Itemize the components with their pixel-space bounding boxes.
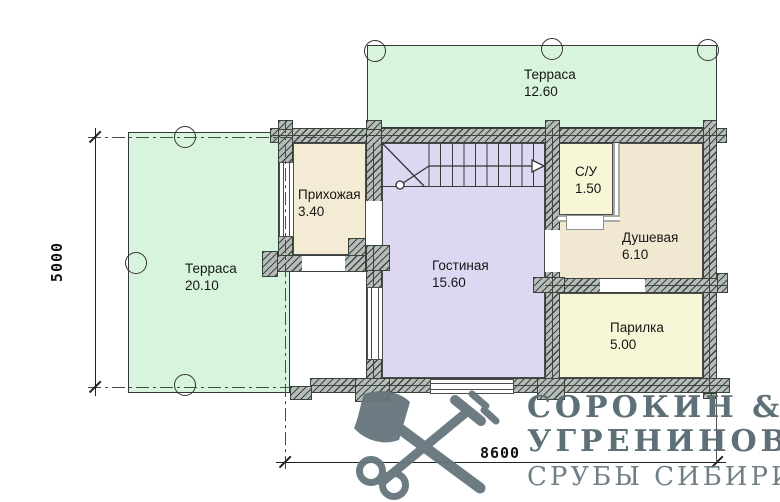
room-area: 1.50 — [575, 180, 601, 197]
door-opening-sauna — [600, 279, 645, 292]
centerline-top — [88, 137, 342, 138]
wall-stub — [366, 245, 390, 271]
logo-line-2: УГРЕНИНОВ — [527, 424, 780, 459]
room-label-hallway: Прихожая 3.40 — [298, 186, 361, 220]
window-living-left — [367, 287, 383, 360]
logo-line-3: СРУБЫ СИБИРИ — [527, 462, 780, 492]
window-hallway — [279, 162, 294, 237]
room-area: 5.00 — [610, 336, 664, 353]
room-name: Парилка — [610, 319, 664, 336]
wall-stub — [348, 238, 366, 256]
column-post — [541, 38, 563, 60]
room-area: 6.10 — [622, 246, 678, 263]
wall-stub — [717, 273, 728, 293]
partition-wc-right — [613, 143, 620, 222]
room-name: Терраса — [524, 66, 576, 83]
room-name: Душевая — [622, 229, 678, 246]
stairs-direction-icon — [382, 143, 545, 191]
dimension-height-value: 5000 — [48, 242, 66, 282]
door-opening-living — [366, 201, 382, 245]
room-name: С/У — [575, 163, 601, 180]
column-post — [174, 374, 196, 396]
room-name: Прихожая — [298, 186, 361, 203]
column-post — [697, 39, 719, 61]
room-label-shower: Душевая 6.10 — [622, 229, 678, 263]
room-label-terrace-left: Терраса 20.10 — [185, 260, 237, 294]
dimension-height-label: 5000 — [48, 234, 68, 290]
wall-stub — [262, 251, 278, 277]
column-post — [364, 40, 386, 62]
wall-stub — [290, 386, 312, 400]
door-opening-shower — [545, 230, 560, 272]
room-label-wc: С/У 1.50 — [575, 163, 601, 197]
wall-centerline — [270, 135, 727, 136]
column-post — [125, 252, 147, 274]
centerline-left — [285, 120, 286, 470]
logo-line-1: СОРОКИН & — [527, 390, 780, 425]
floor-plan-canvas: 5000 8600 Терраса 12.60 Терраса 20.10 Пр… — [0, 0, 780, 502]
wall-centerline — [709, 128, 710, 393]
room-name: Терраса — [185, 260, 237, 277]
wall-centerline — [310, 385, 730, 386]
room-name: Гостиная — [432, 257, 489, 274]
room-area: 12.60 — [524, 83, 576, 100]
room-label-terrace-top: Терраса 12.60 — [524, 66, 576, 100]
wall-stub — [366, 120, 382, 130]
wall-right — [703, 120, 717, 393]
room-area: 15.60 — [432, 274, 489, 291]
room-label-sauna: Парилка 5.00 — [610, 319, 664, 353]
door-leaf-wc — [566, 215, 604, 230]
centerline-bottom — [88, 387, 290, 388]
room-label-living: Гостиная 15.60 — [432, 257, 489, 291]
door-opening-hallway — [302, 256, 345, 271]
dimension-line-height — [95, 128, 96, 396]
room-area: 20.10 — [185, 277, 237, 294]
room-area: 3.40 — [298, 203, 361, 220]
axe-and-key-icon — [352, 388, 504, 502]
